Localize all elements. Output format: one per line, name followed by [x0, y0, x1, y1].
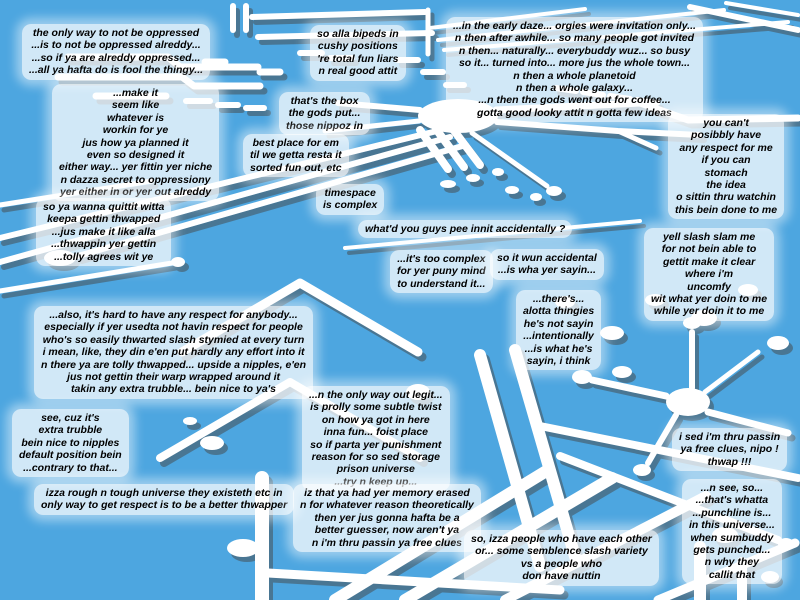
- speech-box-rough-universe: izza rough n tough universe they existet…: [34, 484, 294, 515]
- speech-box-extra-trubble: see, cuz it's extra trubble bein nice to…: [12, 409, 129, 477]
- speech-box-bipeds: so alla bipeds in cushy positions 're to…: [310, 25, 406, 81]
- speech-box-timespace: timespace is complex: [316, 184, 384, 215]
- speech-box-wun-accidental: so it wun accidental ...is wha yer sayin…: [490, 249, 604, 280]
- speech-box-hard-respect: ...also, it's hard to have any respect f…: [34, 306, 313, 399]
- speech-box-thingies: ...there's... alotta thingies he's not s…: [516, 290, 601, 370]
- speech-box-way-out: ...n the only way out legit... is prolly…: [302, 386, 450, 491]
- speech-box-yell-slash: yell slash slam me for not bein able to …: [644, 228, 774, 321]
- speech-box-early-daze: ...in the early daze... orgies were invi…: [446, 17, 703, 122]
- speech-box-gods-box: that's the box the gods put... those nip…: [279, 92, 370, 135]
- speech-box-oppressed: the only way to not be oppressed ...is t…: [22, 24, 210, 80]
- speech-box-pee-innit: what'd you guys pee innit accidentally ?: [358, 220, 572, 238]
- speech-box-no-respect: you can't posibbly have any respect for …: [668, 114, 784, 219]
- speech-box-best-place: best place for em til we getta resta it …: [243, 134, 349, 177]
- speech-box-memory-erased: iz that ya had yer memory erased n for w…: [293, 484, 481, 552]
- speech-box-semblence: so, izza people who have each other or..…: [464, 530, 659, 586]
- speech-box-make-it-seem: ...make it seem like whatever is workin …: [52, 84, 219, 201]
- speech-box-too-complex: ...it's too complex for yer puny mind to…: [390, 250, 493, 293]
- comic-canvas: the only way to not be oppressed ...is t…: [0, 0, 800, 600]
- speech-box-quittit: so ya wanna quittit witta keepa gettin t…: [36, 198, 171, 266]
- speech-box-free-clues: i sed i'm thru passin ya free clues, nip…: [672, 428, 787, 471]
- speech-box-punchline: ...n see, so... ...that's whatta ...punc…: [682, 479, 782, 584]
